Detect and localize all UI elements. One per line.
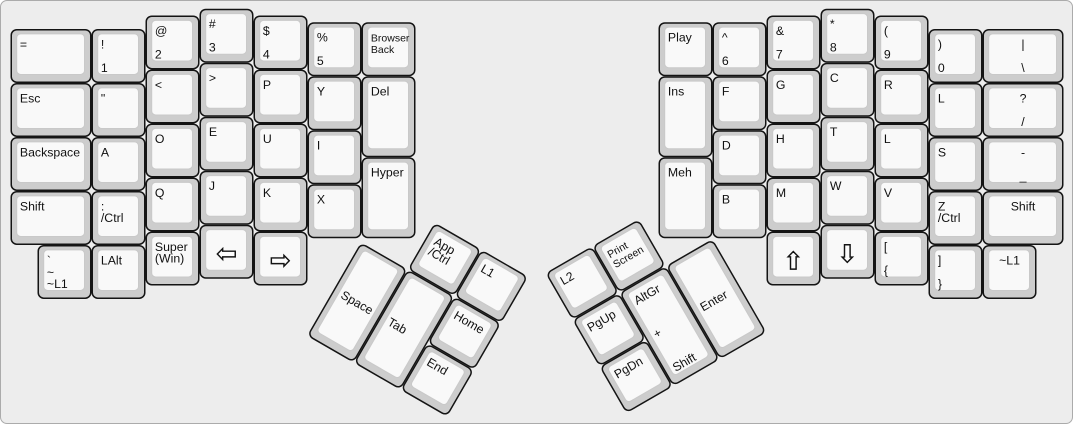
svg-text:F: F <box>722 85 730 99</box>
svg-text:^: ^ <box>722 31 728 45</box>
svg-text:3: 3 <box>209 41 216 55</box>
svg-text:~L1: ~L1 <box>999 253 1020 267</box>
svg-text:G: G <box>776 78 786 92</box>
svg-text:): ) <box>938 37 942 51</box>
svg-text:T: T <box>830 125 838 139</box>
svg-text:Back: Back <box>371 44 395 56</box>
svg-text:?: ? <box>1020 91 1027 105</box>
svg-text:#: # <box>209 17 216 31</box>
svg-text:S: S <box>938 145 946 159</box>
svg-text:%: % <box>317 31 328 45</box>
svg-text:!: ! <box>101 37 104 51</box>
svg-text:@: @ <box>155 24 167 38</box>
svg-text:L: L <box>884 132 891 146</box>
svg-text:]: ] <box>938 253 941 267</box>
svg-text:&: & <box>776 24 785 38</box>
svg-text:0: 0 <box>938 61 945 75</box>
svg-text:U: U <box>263 132 272 146</box>
svg-text:$: $ <box>263 24 270 38</box>
svg-text:1: 1 <box>101 61 108 75</box>
svg-text:-: - <box>1021 145 1025 159</box>
svg-text:}: } <box>938 277 942 291</box>
svg-text:C: C <box>830 71 839 85</box>
svg-text:_: _ <box>1019 169 1027 183</box>
svg-text:K: K <box>263 186 272 200</box>
svg-text:L: L <box>938 91 945 105</box>
svg-text:<: < <box>155 78 162 92</box>
svg-text:Play: Play <box>668 31 693 45</box>
svg-text:Backspace: Backspace <box>20 145 80 159</box>
svg-text:6: 6 <box>722 54 729 68</box>
svg-text:{: { <box>884 263 888 277</box>
svg-text:R: R <box>884 78 893 92</box>
svg-text:W: W <box>830 179 842 193</box>
svg-text:9: 9 <box>884 47 891 61</box>
svg-text:Shift: Shift <box>1011 199 1036 213</box>
svg-text:Del: Del <box>371 85 389 99</box>
svg-text:X: X <box>317 193 325 207</box>
svg-text:V: V <box>884 186 893 200</box>
svg-text:|: | <box>1021 37 1024 51</box>
svg-text:>: > <box>209 71 216 85</box>
svg-text:Hyper: Hyper <box>371 166 404 180</box>
svg-text:Shift: Shift <box>20 199 45 213</box>
svg-text:O: O <box>155 132 165 146</box>
svg-text:\: \ <box>1021 61 1025 75</box>
svg-text:LAlt: LAlt <box>101 253 123 267</box>
svg-text:*: * <box>830 17 835 31</box>
svg-text:2: 2 <box>155 47 162 61</box>
svg-text:8: 8 <box>830 41 837 55</box>
svg-text:J: J <box>209 179 215 193</box>
svg-text:P: P <box>263 78 271 92</box>
svg-text:M: M <box>776 186 786 200</box>
svg-text:~L1: ~L1 <box>47 277 68 291</box>
svg-text:4: 4 <box>263 47 270 61</box>
svg-text:=: = <box>20 37 27 51</box>
svg-text:Esc: Esc <box>20 91 41 105</box>
svg-text:D: D <box>722 139 731 153</box>
svg-text:(Win): (Win) <box>155 251 184 265</box>
svg-text:Meh: Meh <box>668 166 692 180</box>
svg-text:E: E <box>209 125 217 139</box>
svg-text:A: A <box>101 145 110 159</box>
svg-text:Y: Y <box>317 85 325 99</box>
svg-text:B: B <box>722 193 730 207</box>
svg-text:": " <box>101 91 105 105</box>
svg-text:Ins: Ins <box>668 85 684 99</box>
svg-text:5: 5 <box>317 54 324 68</box>
svg-text:/: / <box>1021 115 1025 129</box>
svg-text:Q: Q <box>155 186 165 200</box>
svg-text:/Ctrl: /Ctrl <box>938 211 961 225</box>
svg-text:/Ctrl: /Ctrl <box>101 211 124 225</box>
svg-text:H: H <box>776 132 785 146</box>
svg-text:7: 7 <box>776 47 783 61</box>
svg-text:[: [ <box>884 240 888 254</box>
svg-text:I: I <box>317 139 320 153</box>
svg-text:Browser: Browser <box>371 33 410 45</box>
